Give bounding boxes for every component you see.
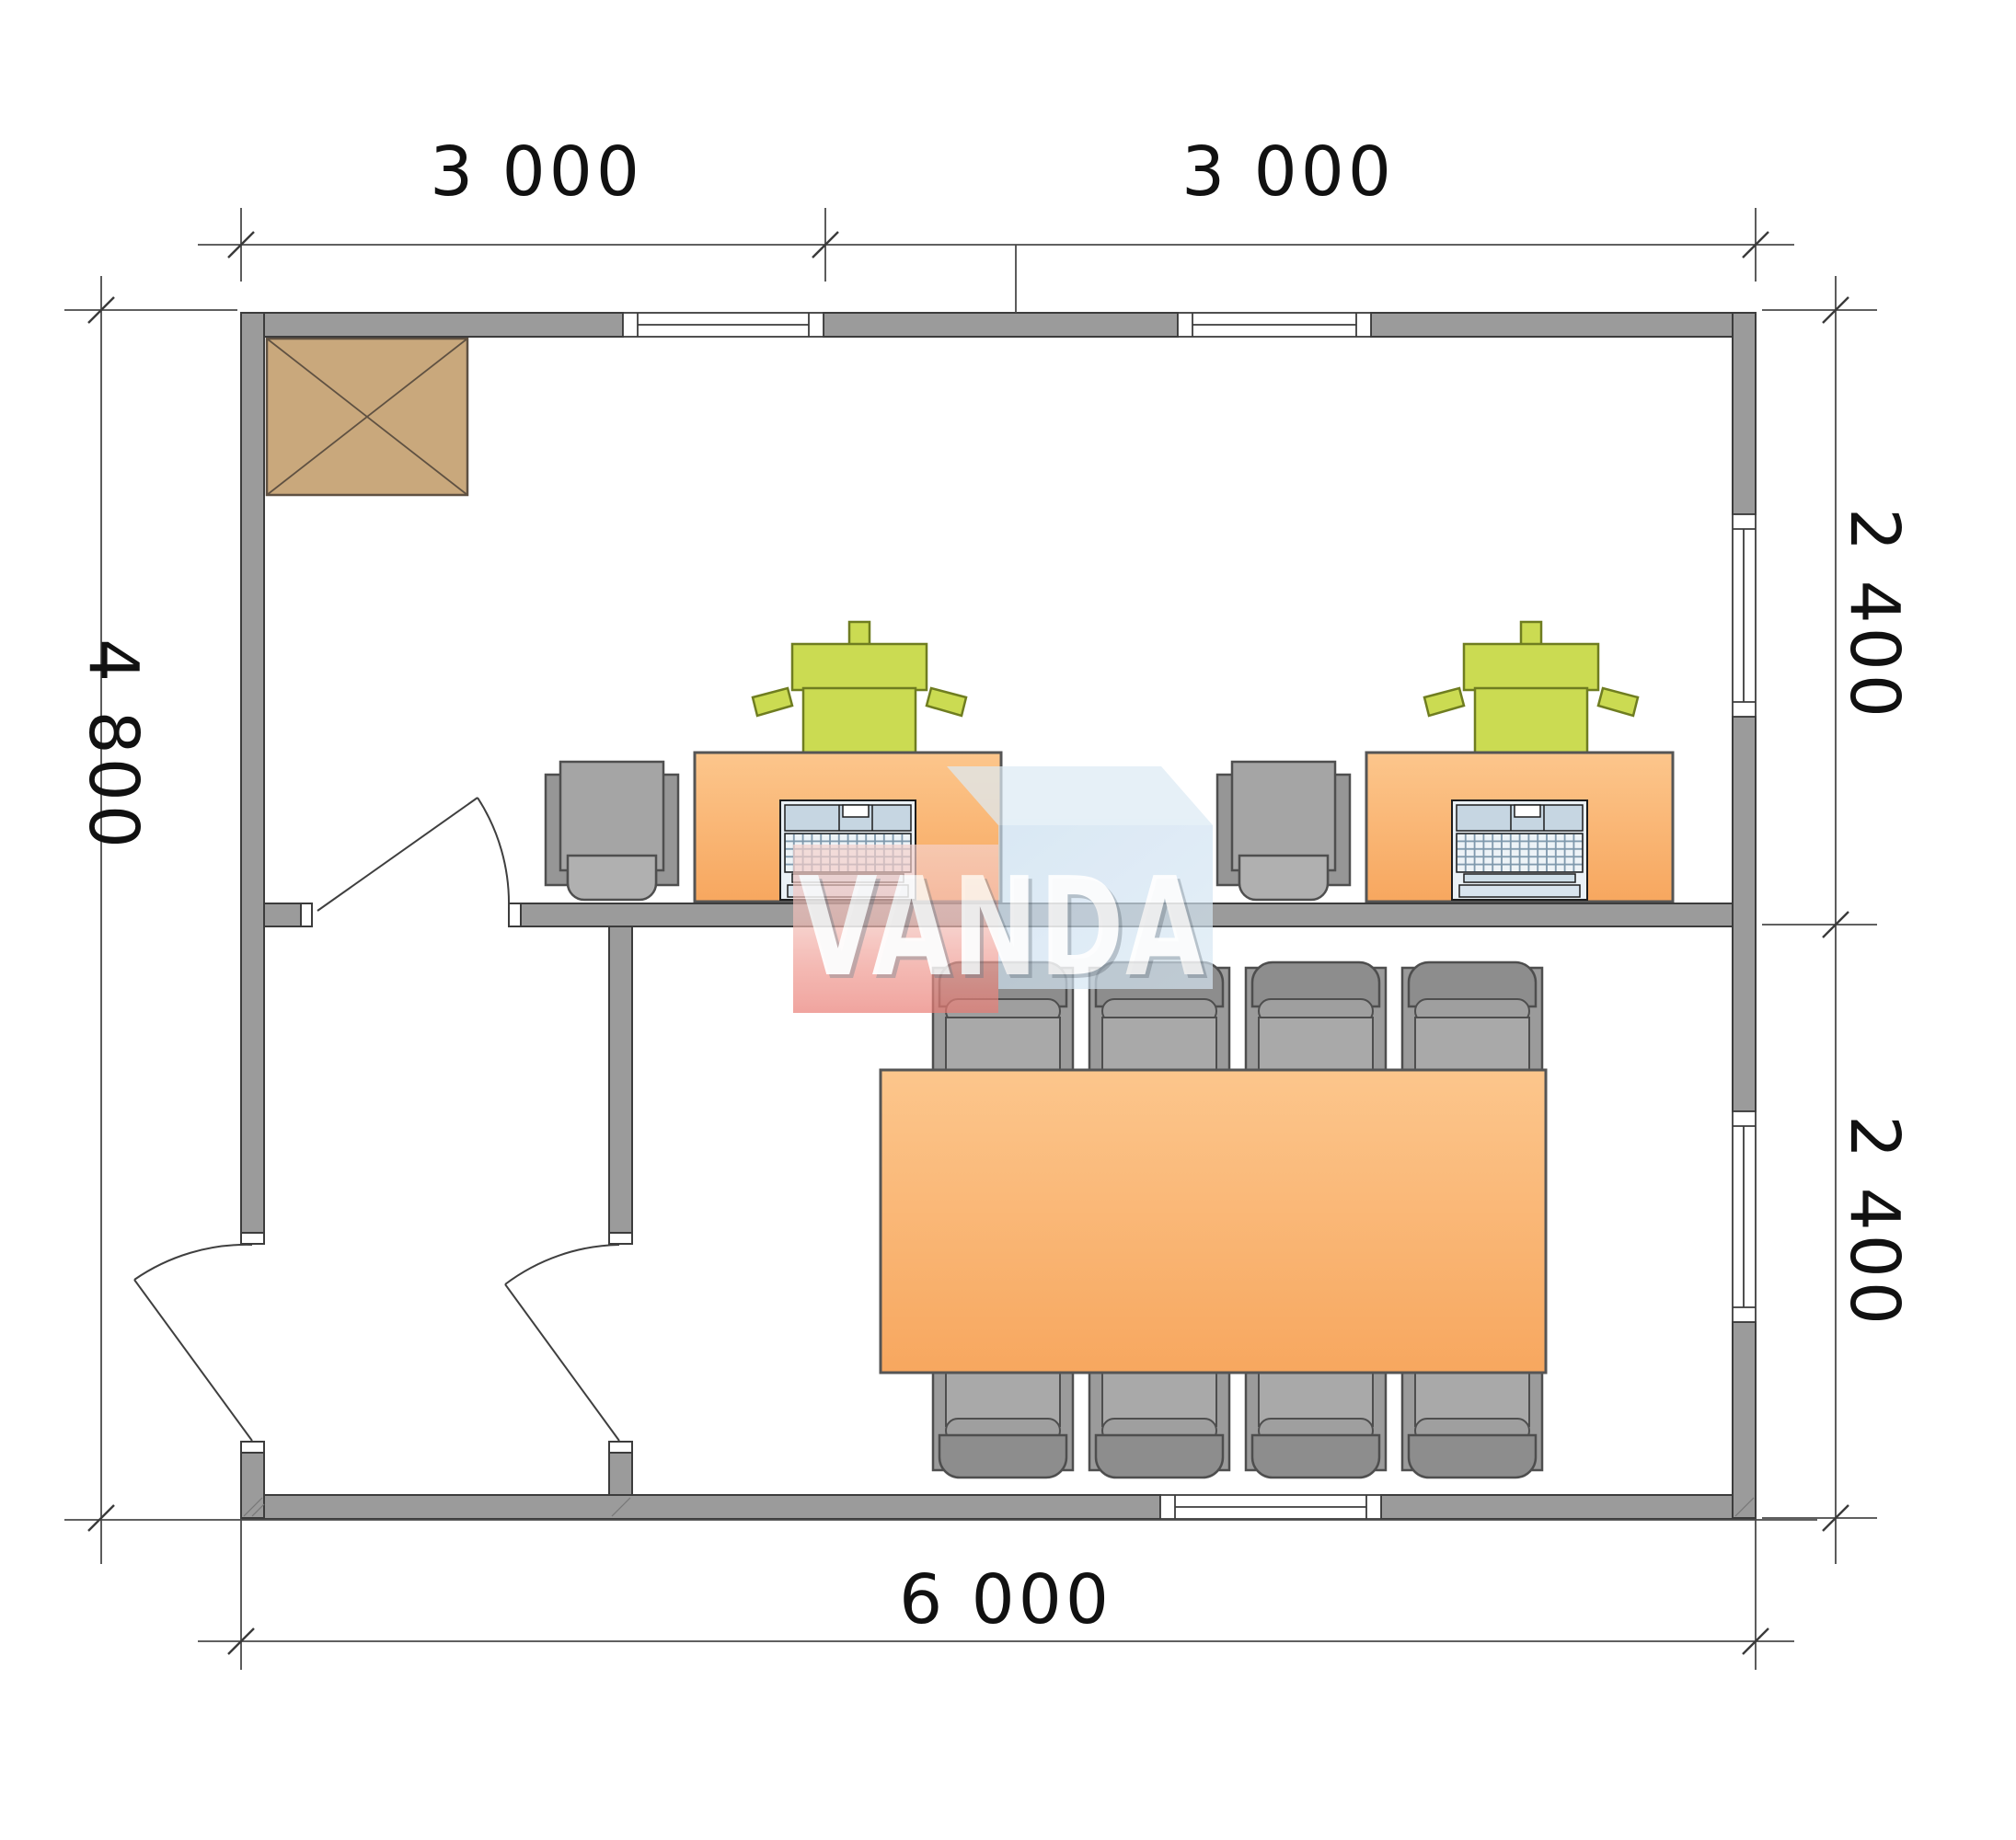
meeting-chair-top-4 bbox=[1402, 962, 1542, 1076]
floor-plan-page: 3 000 3 000 4 800 2 400 2 400 bbox=[0, 0, 2016, 1840]
meeting-table bbox=[881, 1070, 1546, 1373]
right-wall-middle bbox=[1733, 717, 1756, 1111]
meeting-door-jamb-top bbox=[609, 1233, 632, 1244]
heater-cabinet bbox=[267, 339, 467, 495]
window-top-1 bbox=[623, 313, 824, 337]
entry-door-jamb-bottom bbox=[241, 1442, 264, 1453]
interior-wall-stub bbox=[264, 903, 301, 926]
window-bottom bbox=[1160, 1495, 1381, 1519]
bottom-wall-right bbox=[1381, 1495, 1756, 1519]
meeting-chair-bottom-2 bbox=[1089, 1367, 1229, 1478]
dim-label-right-lower: 2 400 bbox=[1835, 1115, 1914, 1328]
dimension-left: 4 800 bbox=[64, 276, 237, 1564]
dim-label-right-upper: 2 400 bbox=[1835, 508, 1914, 721]
meeting-chair-bottom-3 bbox=[1246, 1367, 1386, 1478]
window-top-2 bbox=[1178, 313, 1371, 337]
dimension-top: 3 000 3 000 bbox=[198, 132, 1794, 313]
meeting-room-door bbox=[505, 1245, 619, 1441]
dim-label-top-2: 3 000 bbox=[1181, 132, 1395, 212]
meeting-chair-top-3 bbox=[1246, 962, 1386, 1076]
dimension-bottom: 6 000 bbox=[198, 1520, 1794, 1670]
logo-text: VANDA bbox=[799, 848, 1206, 1006]
left-wall-upper bbox=[241, 313, 264, 1233]
window-right-lower bbox=[1733, 1111, 1756, 1322]
doors bbox=[134, 798, 632, 1453]
top-wall-left bbox=[241, 313, 623, 337]
dim-label-top-1: 3 000 bbox=[430, 132, 643, 212]
office-door bbox=[317, 798, 509, 911]
partition-wall-upper bbox=[609, 926, 632, 1233]
top-wall-middle bbox=[824, 313, 1178, 337]
entry-door bbox=[134, 1245, 252, 1441]
dim-label-bottom: 6 000 bbox=[899, 1560, 1112, 1639]
meeting-door-jamb-bottom bbox=[609, 1442, 632, 1453]
window-right-upper bbox=[1733, 514, 1756, 717]
workstation-2 bbox=[1217, 622, 1673, 902]
office-door-jamb-right bbox=[509, 903, 521, 926]
bottom-wall-left bbox=[241, 1495, 1160, 1519]
dim-label-left: 4 800 bbox=[74, 638, 153, 852]
floor-plan-canvas: 3 000 3 000 4 800 2 400 2 400 bbox=[0, 0, 2016, 1840]
entry-door-jamb-top bbox=[241, 1233, 264, 1244]
dimension-right: 2 400 2 400 bbox=[1762, 276, 1914, 1564]
top-wall-right bbox=[1371, 313, 1756, 337]
right-wall-lower bbox=[1733, 1322, 1756, 1518]
meeting-chair-bottom-1 bbox=[933, 1367, 1073, 1478]
office-door-jamb-left bbox=[301, 903, 312, 926]
partition-wall-lower bbox=[609, 1453, 632, 1495]
meeting-chair-bottom-4 bbox=[1402, 1367, 1542, 1478]
right-wall-upper bbox=[1733, 313, 1756, 514]
